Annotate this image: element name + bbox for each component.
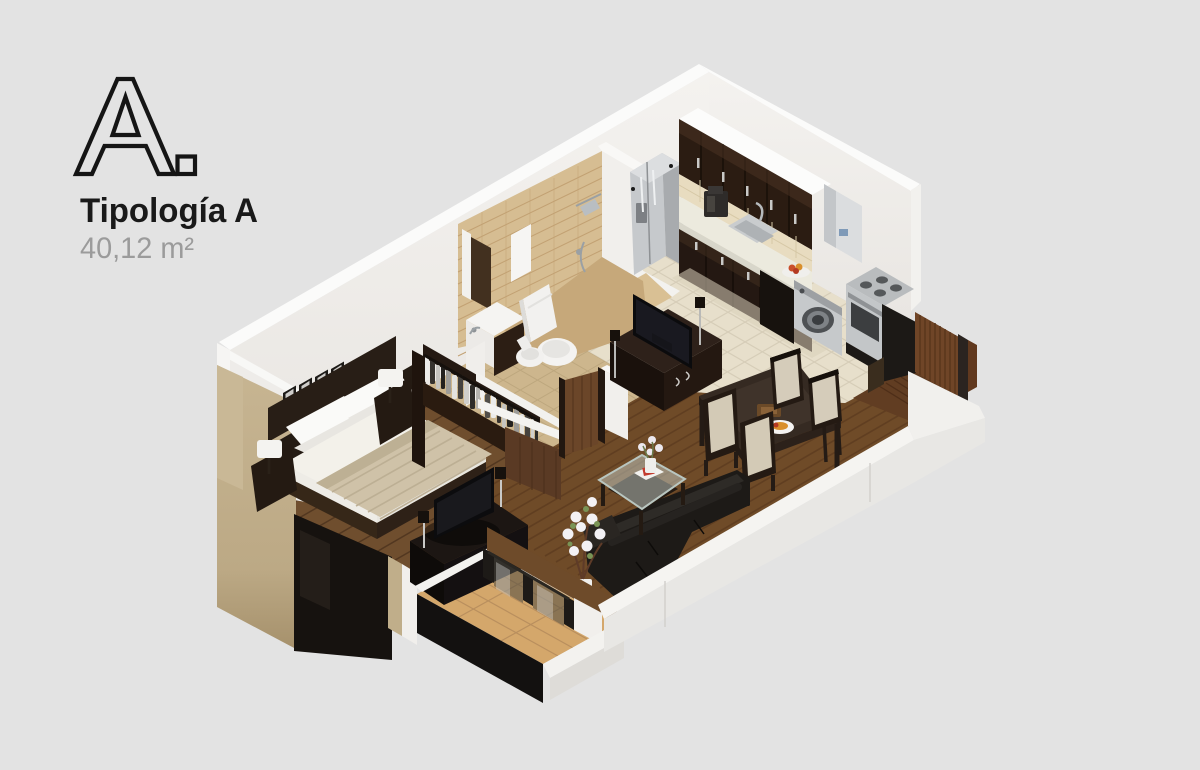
svg-text:40,12 m²: 40,12 m²: [80, 232, 194, 265]
svg-text:Tipología A: Tipología A: [80, 192, 258, 230]
